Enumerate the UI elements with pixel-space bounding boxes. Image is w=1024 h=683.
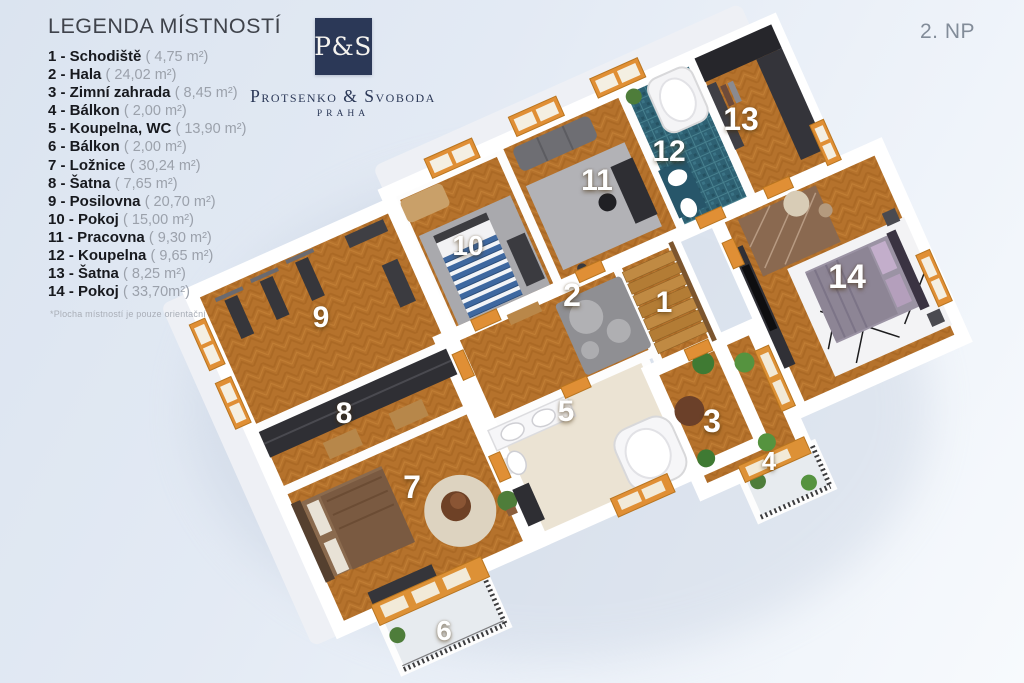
legend-item-name: 13 - Šatna: [48, 265, 123, 282]
legend-item-area: ( 2,00 m²): [124, 103, 187, 119]
legend-item-name: 7 - Ložnice: [48, 157, 130, 174]
legend-item-5: 5 - Koupelna, WC ( 13,90 m²): [48, 120, 308, 138]
legend-item-area: ( 9,30 m²): [149, 230, 212, 246]
floor-label: 2. NP: [920, 20, 975, 44]
legend-item-area: ( 33,70m²): [123, 284, 190, 300]
legend-item-area: ( 20,70 m²): [145, 194, 216, 210]
legend-item-area: ( 8,25 m²): [123, 266, 186, 282]
legend-item-area: ( 7,65 m²): [115, 176, 178, 192]
legend-item-11: 11 - Pracovna ( 9,30 m²): [48, 229, 308, 247]
logo-monogram-box: P&S: [315, 18, 372, 75]
logo-monogram: P&S: [314, 32, 372, 61]
floorplan-page: 1234567891011121314 LEGENDA MÍSTNOSTÍ 1 …: [0, 0, 1024, 683]
legend-item-6: 6 - Bálkon ( 2,00 m²): [48, 138, 308, 156]
legend-item-area: ( 13,90 m²): [176, 121, 247, 137]
logo-city: PRAHA: [247, 109, 439, 119]
legend-item-name: 9 - Posilovna: [48, 193, 145, 210]
legend-item-name: 12 - Koupelna: [48, 247, 151, 264]
legend-item-name: 2 - Hala: [48, 66, 106, 83]
legend-item-9: 9 - Posilovna ( 20,70 m²): [48, 193, 308, 211]
legend-item-name: 10 - Pokoj: [48, 211, 123, 228]
legend-item-10: 10 - Pokoj ( 15,00 m²): [48, 211, 308, 229]
legend-item-area: ( 24,02 m²): [106, 67, 177, 83]
legend-item-name: 3 - Zimní zahrada: [48, 84, 175, 101]
legend-item-name: 6 - Bálkon: [48, 138, 124, 155]
legend-item-8: 8 - Šatna ( 7,65 m²): [48, 175, 308, 193]
legend-item-14: 14 - Pokoj ( 33,70m²): [48, 283, 308, 301]
legend-item-area: ( 30,24 m²): [130, 158, 201, 174]
legend-item-name: 4 - Bálkon: [48, 102, 124, 119]
legend-footnote: *Plocha místností je pouze orientační: [50, 309, 308, 319]
legend-item-name: 8 - Šatna: [48, 175, 115, 192]
legend-item-area: ( 2,00 m²): [124, 139, 187, 155]
legend-item-12: 12 - Koupelna ( 9,65 m²): [48, 247, 308, 265]
legend-item-13: 13 - Šatna ( 8,25 m²): [48, 265, 308, 283]
legend-item-7: 7 - Ložnice ( 30,24 m²): [48, 157, 308, 175]
logo-company-name: Protsenko & Svoboda: [247, 86, 439, 107]
legend-item-name: 14 - Pokoj: [48, 283, 123, 300]
brand-logo: P&S Protsenko & Svoboda PRAHA: [247, 18, 439, 119]
legend-item-area: ( 4,75 m²): [146, 49, 209, 65]
legend-item-name: 5 - Koupelna, WC: [48, 120, 176, 137]
legend-item-name: 1 - Schodiště: [48, 48, 146, 65]
legend-item-area: ( 15,00 m²): [123, 212, 194, 228]
legend-item-area: ( 8,45 m²): [175, 85, 238, 101]
legend-item-name: 11 - Pracovna: [48, 229, 149, 246]
legend-item-area: ( 9,65 m²): [151, 248, 214, 264]
